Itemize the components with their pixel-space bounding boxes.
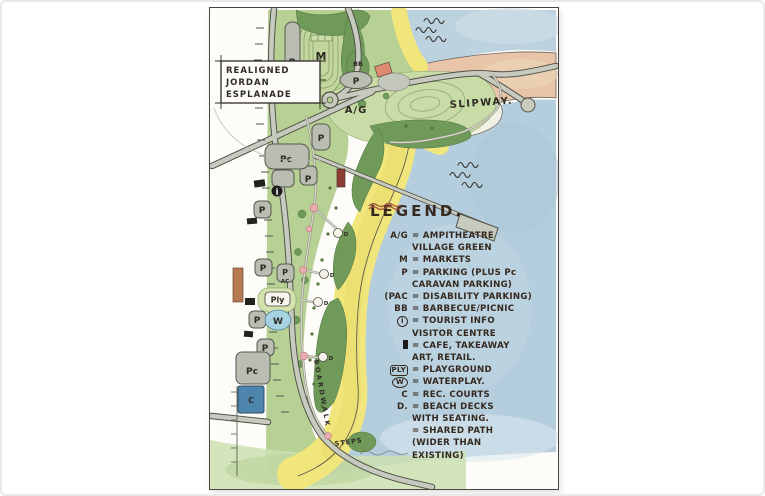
legend-row: = SHARED PATH	[368, 425, 558, 437]
parking-label: P	[353, 77, 360, 87]
playground-area: Ply	[258, 288, 296, 312]
legend-row: VILLAGE GREEN	[368, 242, 558, 254]
tourist-info-icon: i	[272, 186, 283, 197]
markets-symbol: M	[368, 254, 412, 266]
drawing-page: Ply W i D D D D	[209, 7, 559, 490]
parking-label: P	[254, 316, 261, 326]
legend-row: EXISTING)	[368, 450, 558, 462]
shared-path-icon	[368, 202, 404, 212]
svg-text:D: D	[324, 301, 329, 307]
svg-text:D: D	[330, 273, 335, 279]
waterplay-symbol: W	[392, 377, 408, 388]
legend-row: D. = BEACH DECKS	[368, 401, 558, 413]
waterplay-area: W	[265, 310, 291, 330]
parking-bay	[272, 170, 294, 187]
waterplay-label: W	[273, 317, 283, 327]
annotation-box: REALIGNED JORDAN ESPLANADE	[215, 55, 326, 109]
annotation-line: REALIGNED	[226, 66, 289, 76]
roundabout	[322, 92, 338, 108]
legend-row: ART, RETAIL.	[368, 352, 558, 364]
beach-club-building	[233, 268, 243, 302]
legend-row: PLY = PLAYGROUND	[368, 364, 558, 376]
kiosk-building	[337, 169, 345, 187]
svg-text:i: i	[275, 187, 278, 197]
caravan-parking-label: Pc	[246, 367, 258, 377]
legend-row: (PAC = DISABILITY PARKING)	[368, 291, 558, 303]
playground-label: Ply	[271, 296, 286, 305]
parking-label: P	[318, 134, 325, 144]
village-green-label: A/G	[345, 105, 368, 116]
parking-label: P	[305, 175, 312, 185]
parking-label: P	[262, 344, 269, 354]
legend-row: i = TOURIST INFO	[368, 315, 558, 327]
legend-row: A/G = AMPITHEATRE	[368, 230, 558, 242]
svg-text:D: D	[329, 356, 334, 362]
barbecue-symbol: BB	[368, 303, 412, 315]
rec-courts-symbol: C	[368, 389, 412, 401]
legend-row: C = REC. COURTS	[368, 389, 558, 401]
legend-row: BB = BARBECUE/PICNIC	[368, 303, 558, 315]
svg-text:D: D	[344, 232, 349, 238]
rec-courts-label: C	[248, 396, 254, 405]
parking-label: P	[259, 206, 266, 216]
annotation-line: JORDAN	[225, 78, 270, 88]
legend-row: WITH SEATING.	[368, 413, 558, 425]
legend-row: CARAVAN PARKING)	[368, 279, 558, 291]
cafe-icon	[403, 340, 408, 349]
parking-label: P	[260, 264, 267, 274]
disability-parking-label: AC	[281, 279, 289, 285]
slipway-turnaround	[521, 98, 535, 112]
legend-row: VISITOR CENTRE	[368, 328, 558, 340]
parking-label: P	[282, 268, 288, 277]
playground-symbol: PLY	[390, 365, 408, 376]
disability-parking-symbol: (PAC	[368, 291, 412, 303]
legend-row: P = PARKING (PLUS Pc	[368, 267, 558, 279]
legend-row: (WIDER THAN	[368, 437, 558, 449]
beach-deck-symbol: D.	[368, 401, 412, 413]
legend-row: = CAFE, TAKEAWAY	[368, 340, 558, 352]
legend-row: M = MARKETS	[368, 254, 558, 266]
parking-symbol: P	[368, 267, 412, 279]
tourist-info-icon: i	[397, 316, 408, 327]
legend-row: W = WATERPLAY.	[368, 376, 558, 388]
legend: LEGEND. A/G = AMPITHEATRE VILLAGE GREEN …	[368, 202, 558, 462]
annotation-line: ESPLANADE	[226, 90, 292, 100]
amphitheatre-symbol: A/G	[368, 230, 412, 242]
barbecue-label: BB	[353, 60, 363, 68]
